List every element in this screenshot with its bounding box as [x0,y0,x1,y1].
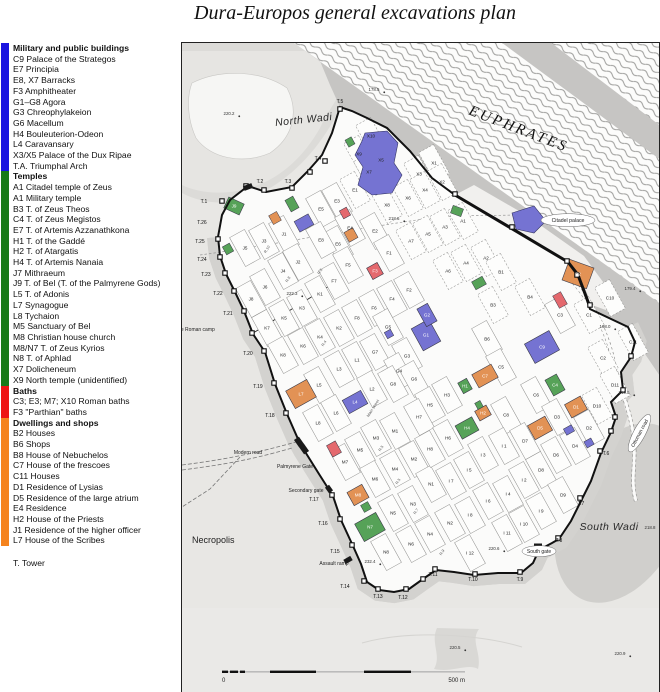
elevation-label: 220.5 [450,645,462,650]
city-block-label: A5 [425,232,431,237]
city-block-label: E2 [372,229,378,234]
scale-bar-segment [240,671,245,673]
legend-item: D5 Residence of the large atrium [13,493,179,504]
legend-section-title: Baths [13,386,179,397]
city-block-label: E6 [335,242,341,247]
city-block-label: J6 [263,285,268,290]
legend-item: C4 T. of Zeus Megistos [13,214,179,225]
tower-mark [308,170,312,174]
city-block-label: K2 [336,326,342,331]
legend-item: B6 Shops [13,439,179,450]
city-block-label: N3 [410,502,416,507]
city-block-label: D9 [560,493,566,498]
map-label: Palmyrene Gate [277,464,313,470]
elevation-label: 198.0 [600,324,612,329]
city-block-label: H6 [445,436,451,441]
tower-mark [404,587,408,591]
city-block-label: H4 [464,426,470,431]
city-block-label: X4 [422,188,428,193]
legend-item: H2 House of the Priests [13,514,179,525]
scale-end-label: 500 m [448,678,465,684]
city-block-label: N2 [447,521,453,526]
city-block-label: I 1 [501,444,507,449]
city-block-label: F8 [354,316,360,321]
tower-label: T.7 [578,501,585,507]
tower-label: T.16 [318,521,328,527]
svg-text:Palmyrene Gate: Palmyrene Gate [277,464,313,470]
elevation-point [379,563,381,565]
tower-mark [578,496,582,500]
city-block-label: X10 [367,134,376,139]
city-block-label: F7 [331,279,337,284]
city-block-label: K8 [280,353,286,358]
city-block-label: G2 [424,313,431,318]
legend-item: B2 Houses [13,428,179,439]
city-block-label: D10 [593,404,602,409]
svg-text:Secondary gate: Secondary gate [288,488,323,494]
tower-mark [453,192,457,196]
elevation-label: 220.6 [489,546,501,551]
legend-item: H2 T. of Atargatis [13,246,179,257]
tower-mark [323,159,327,163]
city-block-label: C4 [552,383,558,388]
city-block-label: K4 [317,335,323,340]
tower-mark [272,381,276,385]
legend-item: E4 Residence [13,503,179,514]
legend-item: G1–G8 Agora [13,97,179,108]
city-block-label: L6 [333,411,339,416]
city-block-label: B4 [527,295,533,300]
city-block-label: D3 [554,415,560,420]
city-block-label: A3 [442,225,448,230]
legend-section: BathsC3; E3; M7; X10 Roman bathsF3 "Part… [1,386,179,418]
city-block-label: I 5 [466,468,472,473]
city-block-label: H8 [427,447,433,452]
map-label: Assault ramp [319,561,348,567]
city-block-label: X6 [405,196,411,201]
legend-item: D1 Residence of Lysias [13,482,179,493]
legend-section: Dwellings and shopsB2 HousesB6 ShopsB8 H… [1,418,179,546]
legend-item: J7 Mithraeum [13,268,179,279]
svg-text:South gate: South gate [527,549,551,555]
elevation-point [464,649,466,651]
legend: Military and public buildingsC9 Palace o… [1,43,179,569]
legend-section: Military and public buildingsC9 Palace o… [1,43,179,171]
elevation-point [503,550,505,552]
city-block-label: M7 [342,460,349,465]
tower-mark [232,289,236,293]
city-block-label: I 12 [466,551,474,556]
legend-item: B8 House of Nebuchelos [13,450,179,461]
svg-text:Limit of the Roman camp: Limit of the Roman camp [182,327,215,333]
city-block-label: G3 [404,354,411,359]
city-block-label: G8 [390,382,397,387]
city-block-label: I 7 [448,479,454,484]
city-block-label: N4 [427,532,433,537]
city-block-label: D8 [538,468,544,473]
city-block-label: L1 [354,358,360,363]
legend-item: F3 Amphitheater [13,86,179,97]
city-block-label: F3 [372,269,378,274]
city-block-label: D11 [611,383,620,388]
elevation-point [383,91,385,93]
elevation-label: 178.5 [369,87,381,92]
city-block-label: J4 [281,269,286,274]
city-block-label: I 4 [505,492,511,497]
tower-label: T.9 [517,577,524,583]
legend-item: A1 Citadel temple of Zeus [13,182,179,193]
legend-item: N8 T. of Aphlad [13,353,179,364]
city-block-label: C11 [629,340,638,345]
scale-bar-segment [270,671,316,673]
city-block-label: C10 [606,296,615,301]
tower-label: T.12 [398,595,408,601]
tower-mark [609,429,613,433]
city-block-label: C7 [482,374,488,379]
tower-label: T.15 [330,549,340,555]
city-block-label: L7 [298,392,304,397]
city-block-label: L3 [336,367,342,372]
legend-item: C9 Palace of the Strategos [13,54,179,65]
tower-label: T.22 [213,291,223,297]
legend-item: L7 Synagogue [13,300,179,311]
city-block-label: C3 [557,313,563,318]
city-block-label: E3 [334,199,340,204]
city-block-label: L2 [369,387,375,392]
tower-label: T.1 [201,199,208,205]
city-block-label: I 10 [520,522,528,527]
city-block-label: I 2 [521,478,527,483]
city-block-label: C9 [539,345,545,350]
city-block-label: G7 [372,350,379,355]
tower-mark [518,570,522,574]
city-block-label: G6 [411,377,418,382]
legend-item: J9 T. of Bel (T. of the Palmyrene Gods) [13,278,179,289]
city-block-label: N8 [383,550,389,555]
page: Dura-Europos general excavations plan Mi… [0,0,660,692]
city-block-label: A1 [460,219,466,224]
page-title: Dura-Europos general excavations plan [50,2,660,25]
city-block-label: E4 [347,226,353,231]
legend-item: X7 Dolicheneum [13,364,179,375]
elevation-label: 220.2 [224,111,236,116]
city-block-label: M4 [392,467,399,472]
city-block-label: B2 [575,272,581,277]
city-block-label: G4 [396,369,403,374]
tower-label: T.13 [373,594,383,600]
city-block-label: X7 [366,170,372,175]
tower-mark [362,579,366,583]
necropolis-plain [182,608,659,692]
city-block-label: C1 [586,313,592,318]
elevation-point [403,220,405,222]
city-block-label: H2 [480,411,486,416]
tower-mark [338,107,342,111]
city-block-label: L4 [352,400,358,405]
excavation-map-panel: X10X9X7X5X3X1X2X4X6X8E1E3E5E4E2E6E8A1A3A… [181,42,660,692]
legend-item: L8 Tychaion [13,311,179,322]
tower-mark [284,411,288,415]
elevation-label: 222.3 [287,291,299,296]
city-block-label: I 9 [538,509,544,514]
tower-label: T.20 [243,351,253,357]
map-label: Necropolis [192,535,235,545]
city-block-label: I 8 [467,513,473,518]
elevation-label: 219.5 [619,390,631,395]
city-block-label: M1 [392,429,399,434]
elevation-label: 218.6 [389,216,401,221]
elevation-label: 220.9 [615,651,627,656]
tower-mark [510,225,514,229]
legend-item: L4 Caravansary [13,139,179,150]
city-block-label: A7 [408,239,414,244]
tower-mark [218,255,222,259]
legend-item: G3 Chreophylakeion [13,107,179,118]
city-block-label: I 11 [503,531,511,536]
elevation-label: 179.4 [625,286,637,291]
legend-item: X3/X5 Palace of the Dux Ripae [13,150,179,161]
city-block-label: H1 [462,384,468,389]
city-block-label: H7 [416,415,422,420]
map-label: Secondary gate [288,488,323,494]
legend-item: L5 T. of Adonis [13,289,179,300]
city-block-label: K7 [264,326,270,331]
legend-section-title: Military and public buildings [13,43,179,54]
city-block-label: D5 [537,426,543,431]
city-block-label: M6 [372,477,379,482]
elevation-point [238,115,240,117]
city-block-label: K3 [299,306,305,311]
legend-item: C3; E3; M7; X10 Roman baths [13,396,179,407]
city-block-label: L5 [316,383,322,388]
tower-label: T.3 [285,179,292,185]
city-block-label: J3 [262,239,267,244]
elevation-point [633,394,635,396]
tower-label: T.23 [201,272,211,278]
tower-mark [216,237,220,241]
legend-item: H4 Bouleuterion-Odeon [13,129,179,140]
city-block-label: J2 [296,260,301,265]
city-block-label: M3 [373,436,380,441]
city-block-label: N5 [390,511,396,516]
city-block-label: K6 [300,344,306,349]
city-block-label: L8 [315,421,321,426]
city-block-label: E1 [352,188,358,193]
city-block-label: I 3 [480,453,486,458]
city-block-label: K1 [317,292,323,297]
map-label: Modern road [234,450,263,456]
city-block-label: C2 [600,356,606,361]
city-block-label: N6 [408,542,414,547]
map-label: South gate [522,546,556,557]
tower-mark [629,354,633,358]
svg-text:Assault ramp: Assault ramp [319,561,348,567]
legend-footnote: T. Tower [1,558,179,569]
city-block-label: H3 [444,393,450,398]
legend-section: TemplesA1 Citadel temple of ZeusA1 Milit… [1,171,179,385]
tower-label: T.19 [253,384,263,390]
city-block-label: M2 [411,457,418,462]
city-block-label: D4 [572,444,578,449]
tower-mark [433,567,437,571]
legend-item: L7 House of the Scribes [13,535,179,546]
city-block-label: C5 [498,365,504,370]
legend-item: H1 T. of the Gaddé [13,236,179,247]
legend-item: M8 Christian house church [13,332,179,343]
scale-bar-segment [222,671,228,673]
city-block-label: D7 [522,439,528,444]
tower-mark [376,587,380,591]
tower-mark [565,259,569,263]
city-block-label: C6 [533,393,539,398]
city-block-label: F4 [389,297,395,302]
tower-label: T.6 [603,451,610,457]
city-block-label: M8 [355,493,362,498]
city-block-label: A4 [463,261,469,266]
city-block-label: J5 [243,246,248,251]
elevation-label: 232.4 [365,559,377,564]
city-block-label: N1 [428,482,434,487]
city-block-label: G1 [423,333,430,338]
tower-mark [242,309,246,313]
scale-bar-segment [364,671,411,673]
tower-mark [473,572,477,576]
city-block-label: D1 [573,405,579,410]
elevation-label: 218.8 [645,525,657,530]
legend-item: F3 "Parthian" baths [13,407,179,418]
city-block-label: J8 [249,297,254,302]
city-block-label: A2 [483,256,489,261]
legend-item: E7 T. of Artemis Azzanathkona [13,225,179,236]
tower-mark [250,331,254,335]
tower-label: T.2 [257,179,264,185]
tower-mark [220,199,224,203]
tower-mark [262,349,266,353]
legend-item: T.A. Triumphal Arch [13,161,179,172]
tower-label: T.26 [197,220,207,226]
city-block-label: K5 [281,316,287,321]
city-block-label: A6 [445,269,451,274]
city-block-label: X9 [356,152,362,157]
elevation-point [614,328,616,330]
tower-mark [338,517,342,521]
tower-mark [588,303,592,307]
legend-item: A1 Military temple [13,193,179,204]
legend-item: E7 Principia [13,64,179,75]
elevation-point [629,655,631,657]
svg-text:South Wadi: South Wadi [579,521,638,533]
tower-label: T.8 [556,538,563,544]
city-block-label: B6 [484,337,490,342]
legend-item: G6 Macellum [13,118,179,129]
tower-label: T.5 [337,99,344,105]
city-block-label: G5 [385,325,392,330]
city-block-label: I 6 [485,499,491,504]
map-label: South Wadi [579,521,638,533]
excavation-map: X10X9X7X5X3X1X2X4X6X8E1E3E5E4E2E6E8A1A3A… [182,43,659,692]
city-block-label: D2 [586,426,592,431]
tower-label: T.25 [195,239,205,245]
city-block-label: X2 [439,180,445,185]
legend-item: B3 T. of Zeus Theos [13,204,179,215]
city-block-label: N7 [367,525,373,530]
elevation-point [301,295,303,297]
legend-section-title: Dwellings and shops [13,418,179,429]
city-block-label: C8 [503,413,509,418]
tower-mark [598,449,602,453]
legend-section-title: Temples [13,171,179,182]
city-block-label: F2 [406,288,412,293]
legend-item: M5 Sanctuary of Bel [13,321,179,332]
city-block-label: B1 [498,270,504,275]
city-block-label: B3 [490,303,496,308]
map-label: Limit of the Roman camp [182,327,215,333]
tower-mark [290,186,294,190]
city-block-label: F5 [345,263,351,268]
scale-bar [222,671,465,673]
legend-item: C7 House of the frescoes [13,460,179,471]
tower-mark [223,271,227,275]
city-block-label: F6 [371,306,377,311]
city-block-label: J1 [282,232,287,237]
legend-item: E8, X7 Barracks [13,75,179,86]
tower-mark [350,543,354,547]
city-block-label: E8 [318,238,324,243]
city-block-label: J9 [232,204,237,209]
svg-text:Necropolis: Necropolis [192,535,235,545]
elevation-point [639,290,641,292]
legend-item: C11 Houses [13,471,179,482]
legend-item: M8/N7 T. of Zeus Kyrios [13,343,179,354]
scale-bar-segment [230,671,238,673]
city-block-label: X3 [416,172,422,177]
legend-item: J1 Residence of the higher officer [13,525,179,536]
legend-item: X9 North temple (unidentified) [13,375,179,386]
tower-mark [613,415,617,419]
svg-text:Modern road: Modern road [234,450,263,456]
tower-mark [262,188,266,192]
city-block-label: M5 [357,448,364,453]
tower-mark [421,577,425,581]
svg-text:Citadel palace: Citadel palace [552,218,585,224]
city-block-label: F1 [386,251,392,256]
map-label: Citadel palace [541,214,595,227]
city-block-label: H5 [427,403,433,408]
tower-label: T.11 [428,572,437,578]
tower-label: T.21 [223,311,233,317]
city-block-label: X8 [384,203,390,208]
legend-item: H4 T. of Artemis Nanaia [13,257,179,268]
tower-label: T.24 [197,257,207,263]
tower-label: T.10 [468,577,478,583]
tower-label: T.14 [340,584,350,590]
tower-label: T.4 [315,156,322,162]
city-block-label: X5 [378,158,384,163]
tower-label: T.18 [265,413,275,419]
city-block-label: D6 [553,453,559,458]
city-block-label: E5 [318,207,324,212]
city-block-label: X1 [431,161,437,166]
tower-label: T.17 [309,497,319,503]
tower-mark [330,493,334,497]
